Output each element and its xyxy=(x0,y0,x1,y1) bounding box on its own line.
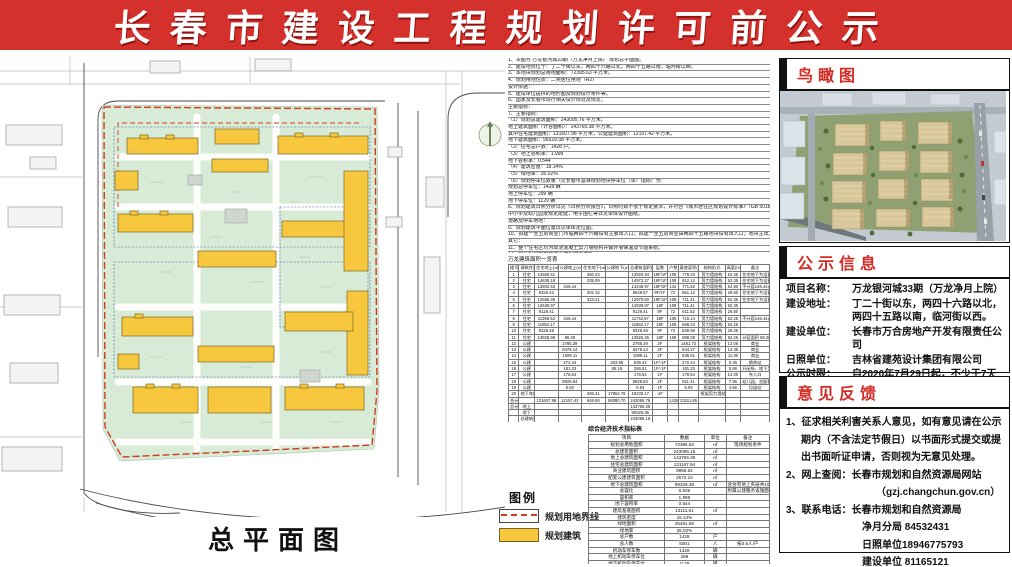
table-cell: 辆 xyxy=(704,554,726,561)
table-cell: ㎡ xyxy=(704,521,726,528)
table-cell: 13111.61 xyxy=(665,507,705,514)
note-line: 11、整个住宅区均为现浇混凝土剪力墙结构并做外墙保温及节能系统。 xyxy=(508,246,770,253)
note-line: 3、本地块规划总用地面积：72395.63 平方米。 xyxy=(508,71,770,78)
aerial-title-text: 鸟瞰图 xyxy=(797,68,860,85)
table-cell: 合计 xyxy=(509,397,519,403)
table-cell: 143765.38 xyxy=(665,455,705,462)
building-table-title: 万龙建筑面积一览表 xyxy=(508,255,770,263)
table-cell xyxy=(726,507,769,514)
table-cell: 框架剪力墙结构 xyxy=(699,391,725,397)
table-cell: 72395.63 xyxy=(665,442,705,449)
table-cell xyxy=(726,560,769,564)
table-cell xyxy=(704,527,726,534)
table-cell: 附属公建服务设施面积占地上总建筑面积 xyxy=(726,488,769,495)
table-row: 地上机动车停车位299辆 xyxy=(589,554,770,561)
table-cell xyxy=(535,416,558,422)
note-line: 设计依据： xyxy=(508,85,770,92)
table-cell: 1.999 xyxy=(665,494,705,501)
table-cell: ㎡ xyxy=(704,461,726,468)
note-line: 主要指标： xyxy=(508,105,770,112)
feedback-line: 净月分局 84532431 xyxy=(786,519,1003,537)
page-title: 长春市建设工程规划许可前公示 xyxy=(112,0,900,52)
planning-notes: 1、本图为 万龙银河城33期（万龙净月上院） 规划总平面图。2、建设地点位于：丁… xyxy=(508,58,770,253)
table-cell xyxy=(678,416,699,422)
column-header: 住宅地下(㎡) xyxy=(582,265,605,272)
table-cell xyxy=(605,416,628,422)
site-plan-map xyxy=(0,57,505,517)
field-label: 日照单位： xyxy=(786,354,850,368)
table-cell: 辆 xyxy=(704,560,726,564)
table-cell: 剪力墙结构 xyxy=(699,321,725,327)
table-cell xyxy=(726,501,769,508)
table-cell xyxy=(704,501,726,508)
table-cell xyxy=(726,534,769,541)
table-cell: 绿地面积 xyxy=(589,521,665,528)
table-cell xyxy=(741,416,770,422)
building-swatch-icon xyxy=(499,528,539,542)
table-cell: 18F/1F xyxy=(652,277,668,283)
indicator-table-title: 综合经济技术指标表 xyxy=(588,424,770,433)
table-cell: ㎡ xyxy=(704,507,726,514)
table-row: 7住宅9128.419128.419F72611.52剪力墙结构26.60 xyxy=(509,309,770,315)
table-cell: 18230.17 xyxy=(629,391,652,397)
table-row: 容积率1.999 xyxy=(589,494,770,501)
table-cell: 25491.59 xyxy=(665,521,705,528)
table-row: 配套公建建筑面积2572.10㎡ xyxy=(589,474,770,481)
notice-field-row: 项目名称：万龙银河城33期（万龙净月上院） xyxy=(786,283,1004,297)
table-row: 4住宅9326.42302.159628.579F/1F72861.12剪力墙结… xyxy=(509,290,770,296)
note-line: 地下容积率：0.544 xyxy=(508,159,770,166)
table-cell: 6.939 xyxy=(665,488,705,495)
notice-info-panel: 公示信息 项目名称：万龙银河城33期（万龙净月上院）建设地址：丁二十街以东，两四… xyxy=(779,246,1010,373)
table-cell xyxy=(699,416,725,422)
table-cell: 13925.26 xyxy=(629,334,652,340)
table-cell xyxy=(726,527,769,534)
table-cell: 18.14% xyxy=(665,514,705,521)
table-cell: 配套公建建筑面积 xyxy=(589,474,665,481)
column-header: 户数 xyxy=(668,265,678,272)
table-cell: 户 xyxy=(704,534,726,541)
note-line: 10、拟建一至五层商业门市临两四十六路设有主要出入口；拟建一至五层商业由两四十五… xyxy=(508,232,770,239)
table-cell: 开闭所，地下为设备用房 xyxy=(741,366,770,372)
table-cell: 299 xyxy=(665,554,705,561)
table-row: 5住宅12656.39323.2112979.6018F/1F108711.41… xyxy=(509,296,770,302)
feedback-title-text: 意见反馈 xyxy=(797,386,881,403)
table-body: 规划总用地面积72395.63㎡现场规划条件总建筑面积243095.16㎡地上总… xyxy=(589,442,770,565)
table-row: 10住宅8328.498328.499F72628.98剪力墙结构26.25 xyxy=(509,328,770,334)
note-line: 中小学及幼儿园按规定配建，电子围栏等详见单体设计图纸。 xyxy=(508,212,770,219)
notice-panel-title: 公示信息 xyxy=(780,247,1009,279)
note-line: 8、规划建筑日照分析详见《日照分析报告》，日照时数不低于规定要求，并符合《城市居… xyxy=(508,205,770,212)
table-cell: 剪力墙结构 xyxy=(699,290,725,296)
table-row: 总容比6.939附属公建服务设施面积占地上总建筑面积 xyxy=(589,488,770,495)
table-cell: 住宅地下为设备夹层 xyxy=(741,271,770,277)
table-cell: 剪力墙结构 xyxy=(699,277,725,283)
feedback-line: 建设单位 81165121 xyxy=(786,554,1003,567)
table-cell: 地下容积率 xyxy=(589,501,665,508)
feedback-line: 2、网上查阅：长春市规划和自然资源局网站 xyxy=(786,467,1003,485)
column-header: 公建地下(㎡) xyxy=(605,265,628,272)
table-row: 住宅总建筑面积131167.94㎡ xyxy=(589,461,770,468)
table-cell xyxy=(652,416,668,422)
table-cell: 243095.76 xyxy=(629,397,652,403)
table-cell: 剪力墙结构 xyxy=(699,309,725,315)
table-cell: 13902.53 xyxy=(535,284,558,290)
table-cell: 剪力墙结构 xyxy=(699,315,725,321)
column-header: 建筑性质 xyxy=(519,265,535,272)
table-cell xyxy=(726,468,769,475)
table-cell xyxy=(726,494,769,501)
note-line: 其中住宅建筑面积：131607.98 平方米，公建建筑面积：12157.42 平… xyxy=(508,132,770,139)
table-cell: ㎡ xyxy=(704,468,726,475)
building-area-table: 万龙建筑面积一览表 楼号建筑性质住宅地上(㎡)公建地上(㎡)住宅地下(㎡)公建地… xyxy=(508,255,770,422)
column-header: 公建地上(㎡) xyxy=(558,265,581,272)
table-cell: 1F/-1F xyxy=(652,359,668,365)
table-cell: 人 xyxy=(704,540,726,547)
table-cell: 总容比 xyxy=(589,488,665,495)
table-cell: 98380.70 xyxy=(605,397,628,403)
table-cell: 幼儿园，含配套用房994.04㎡ xyxy=(741,378,770,384)
table-cell: 13560.51 xyxy=(535,271,558,277)
table-cell: 总建筑面积 xyxy=(589,448,665,455)
table-body: 1住宅13560.51360.4313920.9418F/1F108778.33… xyxy=(509,271,770,422)
table-cell xyxy=(509,416,519,422)
note-line: （2）住宅总户数：1428 户。 xyxy=(508,145,770,152)
table-cell: 14248.97 xyxy=(629,284,652,290)
table-cell xyxy=(582,416,605,422)
table-row: 地上总建筑面积143765.38㎡ xyxy=(589,455,770,462)
notice-field-row: 日照单位：吉林省建苑设计集团有限公司 xyxy=(786,354,1004,368)
field-label: 建设单位： xyxy=(786,326,850,353)
table-cell: 绿地率 xyxy=(589,527,665,534)
table-row: 2住宅14638.18335.0914973.2718F/1F108812.12… xyxy=(509,277,770,283)
table-cell: 剪力墙结构 xyxy=(699,334,725,340)
table-cell: 住宅总建筑面积 xyxy=(589,461,665,468)
table-cell: 1428 xyxy=(665,534,705,541)
table-cell xyxy=(704,488,726,495)
table-cell: 11742.97 xyxy=(629,315,652,321)
column-header: 基底面积(㎡) xyxy=(678,265,699,272)
table-cell: 地上总建筑面积 xyxy=(589,455,665,462)
table-cell: 计容面积 96.28㎡ xyxy=(741,334,770,340)
table-cell: 35.02% xyxy=(665,527,705,534)
table-cell: 地下车库 xyxy=(519,391,535,397)
table-cell: 17964.76 xyxy=(605,391,628,397)
feedback-line: 日照单位18946775793 xyxy=(786,537,1003,555)
table-cell: 13920.94 xyxy=(629,271,652,277)
table-cell: 12656.39 xyxy=(535,296,558,302)
feedback-lines: 1、征求相关利害关系人意见，如有意见请在公示期内（不含法定节假日）以书面形式提交… xyxy=(780,409,1009,567)
legend-label: 规划建筑 xyxy=(545,529,581,542)
table-row: 9住宅11862.1711862.1718F108668.34剪力墙结构52.2… xyxy=(509,321,770,327)
table-cell: 住宅地下为设备夹层 xyxy=(741,290,770,296)
feedback-panel: 意见反馈 1、征求相关利害关系人意见，如有意见请在公示期内（不含法定节假日）以书… xyxy=(779,376,1010,553)
column-header: 单位 xyxy=(704,435,726,442)
table-cell: 18F/2F xyxy=(652,284,668,290)
table-cell: 99329.38 xyxy=(629,410,652,416)
public-notice-poster: 长春市建设工程规划许可前公示 xyxy=(0,0,1012,567)
table-row: 建筑密度18.14% xyxy=(589,514,770,521)
table-row: 总户数1428户 xyxy=(589,534,770,541)
table-row: 11住宅13828.9896.2813925.2618F108888.08剪力墙… xyxy=(509,334,770,340)
table-row: 机动车停车数1428辆 xyxy=(589,547,770,554)
note-line: 5、建设单位提供的地形图及规划设计条件等。 xyxy=(508,92,770,99)
indicator-table: 综合经济技术指标表 项目数据单位备注 规划总用地面积72395.63㎡现场规划条… xyxy=(588,424,770,564)
field-value: 吉林省建苑设计集团有限公司 xyxy=(852,354,1004,368)
table-cell: 1428 xyxy=(665,547,705,554)
table-cell: 不计容146.44㎡ xyxy=(741,284,770,290)
note-line: 地上建筑面积（计容面积）：143765.38 平方米。 xyxy=(508,125,770,132)
table-cell: 容积率 xyxy=(589,494,665,501)
table-cell: ㎡ xyxy=(704,455,726,462)
table-cell: 5001 xyxy=(665,540,705,547)
table-cell xyxy=(726,455,769,462)
table-row: 3住宅13902.53346.4414248.9718F/2F144771.52… xyxy=(509,284,770,290)
field-label: 项目名称： xyxy=(786,283,850,297)
table-cell: 18F/1F xyxy=(652,296,668,302)
column-header: 结构形式 xyxy=(699,265,725,272)
column-header: 住宅地上(㎡) xyxy=(535,265,558,272)
table-cell: 0.544 xyxy=(665,501,705,508)
table-cell: ㎡ xyxy=(704,448,726,455)
site-plan-title: 总平面图 xyxy=(158,520,398,557)
table-row: 建筑基底面积13111.61㎡ xyxy=(589,507,770,514)
table-cell: 规划总用地面积 xyxy=(589,442,665,449)
note-line: 道路及停车场地： xyxy=(508,219,770,226)
column-header: 总建筑面积(㎡) xyxy=(629,265,652,272)
table-cell: 住宅地下为设备夹层 xyxy=(741,296,770,302)
note-line: 12、停车位应预留安装充电设施的条件。 xyxy=(508,252,770,253)
table-cell: 143765.38 xyxy=(629,403,652,409)
table-cell: 1481.72 xyxy=(678,340,699,346)
note-line: 6、国家及长春市现行相关设计规范及规定。 xyxy=(508,98,770,105)
note-line: （1）规划总建筑面积：243095.76 平方米。 xyxy=(508,118,770,125)
table-cell: 总建筑面积 xyxy=(519,416,535,422)
feedback-line: 3、联系电话：长春市规划和自然资源局 xyxy=(786,502,1003,520)
table-cell: ㎡ xyxy=(704,474,726,481)
table-cell: 2572.10 xyxy=(665,474,705,481)
table-cell: 总计 xyxy=(509,403,519,409)
table-cell: 地上机动车停车位 xyxy=(589,554,665,561)
feedback-panel-title: 意见反馈 xyxy=(780,377,1009,409)
table-cell: 建筑基底面积 xyxy=(589,507,665,514)
table-cell: 1F/-1F xyxy=(652,366,668,372)
notice-field-row: 建设地址：丁二十街以东，两四十六路以北，两四十五路以南，临河街以西。 xyxy=(786,298,1004,325)
table-cell: 1129 xyxy=(665,560,705,564)
table-cell: 12639.97 xyxy=(629,303,652,309)
table-row: 6住宅12639.9712639.9718F108711.41剪力墙结构52.3… xyxy=(509,303,770,309)
note-line: （3）地上容积率：1.999 xyxy=(508,152,770,159)
table-cell: 11862.17 xyxy=(629,321,652,327)
notice-fields: 项目名称：万龙银河城33期（万龙净月上院）建设地址：丁二十街以东，两四十六路以北… xyxy=(780,279,1009,385)
column-header: 备注 xyxy=(726,435,769,442)
table-cell xyxy=(726,514,769,521)
table-cell: 1428 xyxy=(668,397,678,403)
table-cell: 12979.60 xyxy=(629,296,652,302)
table-row: 地下总建筑面积99329.38㎡含住宅地上夹层共1049.09㎡ xyxy=(589,481,770,488)
table-row: 地下机动车停车位1129辆 xyxy=(589,560,770,564)
table-row: 绿地面积25491.59㎡ xyxy=(589,521,770,528)
note-line: （4）建筑密度：18.14% xyxy=(508,165,770,172)
column-header: 层数 xyxy=(652,265,668,272)
table-cell xyxy=(668,416,678,422)
table-cell xyxy=(558,416,581,422)
table-cell: 11862.17 xyxy=(535,321,558,327)
note-line: （6）规划停车位数量（见长春市基准规划地块停车位（单）指标）为： xyxy=(508,179,770,186)
table-cell: 不计容146.44㎡ xyxy=(741,315,770,321)
aerial-render-image xyxy=(780,91,1006,241)
table-cell: 地下机动车停车位 xyxy=(589,560,665,564)
table-cell: 12157.42 xyxy=(558,397,581,403)
note-line: 地下停车位：1129 辆 xyxy=(508,199,770,206)
table-row: 地下容积率0.544 xyxy=(589,501,770,508)
table-cell: 243095.16 xyxy=(665,448,705,455)
table-cell: 含住宅地上夹层共1049.09㎡ xyxy=(726,481,769,488)
table-cell xyxy=(726,461,769,468)
table-cell: 剪力墙结构 xyxy=(699,303,725,309)
table-row: 总人数5001人按3.5人/户 xyxy=(589,540,770,547)
note-line: 地下建筑面积：99329.38 平方米。 xyxy=(508,138,770,145)
table-cell xyxy=(704,494,726,501)
table-row: 总建筑面积243095.16 xyxy=(509,416,770,422)
table-cell: 总户数 xyxy=(589,534,665,541)
table-cell xyxy=(726,521,769,528)
table-cell: 11396.53 xyxy=(535,315,558,321)
table-cell: 机动车停车数 xyxy=(589,547,665,554)
table-cell: 建筑密度 xyxy=(589,514,665,521)
field-label: 建设地址： xyxy=(786,298,850,325)
table-header: 楼号建筑性质住宅地上(㎡)公建地上(㎡)住宅地下(㎡)公建地下(㎡)总建筑面积(… xyxy=(509,265,770,272)
table-cell: 剪力墙结构 xyxy=(699,328,725,334)
table-cell: 剪力墙结构 xyxy=(699,284,725,290)
feedback-line: 1、征求相关利害关系人意见，如有意见请在公示期内（不含法定节假日）以书面形式提交… xyxy=(786,414,1003,467)
table-cell xyxy=(726,448,769,455)
column-header: 数据 xyxy=(665,435,705,442)
table-cell: 18F/1F xyxy=(652,271,668,277)
table-cell xyxy=(726,554,769,561)
feedback-line: （gzj.changchun.gov.cn） xyxy=(786,484,1003,502)
table-cell: 剪力墙结构 xyxy=(699,296,725,302)
table-cell: 商业建筑面积 xyxy=(589,468,665,475)
table-cell: 131167.94 xyxy=(665,461,705,468)
table-row: 规划总用地面积72395.63㎡现场规划条件 xyxy=(589,442,770,449)
table-cell: ㎡ xyxy=(704,481,726,488)
column-header: 备注 xyxy=(741,265,770,272)
aerial-view-panel: 鸟瞰图 xyxy=(779,58,1010,243)
table-row: 总建筑面积243095.16㎡ xyxy=(589,448,770,455)
column-header: 项目 xyxy=(589,435,665,442)
aerial-panel-title: 鸟瞰图 xyxy=(780,59,1009,91)
table-cell: 按3.5人/户 xyxy=(726,540,769,547)
table-cell: 辆 xyxy=(704,547,726,554)
table-cell: 9956.64 xyxy=(665,468,705,475)
table-cell: 14638.18 xyxy=(535,277,558,283)
column-header: 高度(m) xyxy=(725,265,741,272)
table-cell: 243095.16 xyxy=(629,416,652,422)
table-cell xyxy=(725,416,741,422)
table-cell xyxy=(726,474,769,481)
note-line: 其它： xyxy=(508,239,770,246)
notice-field-row: 建设单位：长春市万合房地产开发有限责任公司 xyxy=(786,326,1004,353)
note-line: 9、规划建筑平面位置详见单体定位图。 xyxy=(508,226,770,233)
table-cell: 13828.98 xyxy=(535,334,558,340)
table-cell xyxy=(704,514,726,521)
field-value: 万龙银河城33期（万龙净月上院） xyxy=(852,283,1004,297)
field-value: 丁二十街以东，两四十六路以北，两四十五路以南，临河街以西。 xyxy=(852,298,1004,325)
table-cell: 14973.27 xyxy=(629,277,652,283)
notice-title-text: 公示信息 xyxy=(797,256,881,273)
table-cell: 23111.85 xyxy=(678,397,699,403)
table-row: 商业建筑面积9956.64㎡ xyxy=(589,468,770,475)
note-line: 7、主要指标： xyxy=(508,112,770,119)
table-row: 绿地率35.02% xyxy=(589,527,770,534)
boundary-swatch-icon xyxy=(499,509,539,523)
note-line: 2、建设地点位于：丁二十街以东，两四十六路以北，两四十五路以南，临河街以西。 xyxy=(508,65,770,72)
note-line: 地上停车位：299 辆 xyxy=(508,192,770,199)
table-cell: 131607.98 xyxy=(535,397,558,403)
table-cell: 剪力墙结构 xyxy=(699,271,725,277)
note-line: 规划总停车位：1428 辆 xyxy=(508,185,770,192)
table-header: 项目数据单位备注 xyxy=(589,435,770,442)
table-cell xyxy=(726,547,769,554)
column-header: 楼号 xyxy=(509,265,519,272)
table-cell: 住宅地下为设备夹层 xyxy=(741,277,770,283)
table-cell: 地下总建筑面积 xyxy=(589,481,665,488)
note-line: 4、规划用地性质：二类居住用地（R2） xyxy=(508,78,770,85)
table-cell: 99329.38 xyxy=(665,481,705,488)
field-value: 长春市万合房地产开发有限责任公司 xyxy=(852,326,1004,353)
table-cell: ㎡ xyxy=(704,442,726,449)
table-cell: 现场规划条件 xyxy=(726,442,769,449)
table-row: 8住宅11396.53346.4411742.9718F108715.14剪力墙… xyxy=(509,315,770,321)
table-cell: 总人数 xyxy=(589,540,665,547)
banner: 长春市建设工程规划许可前公示 xyxy=(0,0,1012,50)
note-line: （5）绿地率：35.02% xyxy=(508,172,770,179)
table-cell: 12639.97 xyxy=(535,303,558,309)
note-line: 1、本图为 万龙银河城33期（万龙净月上院） 规划总平面图。 xyxy=(508,58,770,65)
table-row: 1住宅13560.51360.4313920.9418F/1F108778.33… xyxy=(509,271,770,277)
